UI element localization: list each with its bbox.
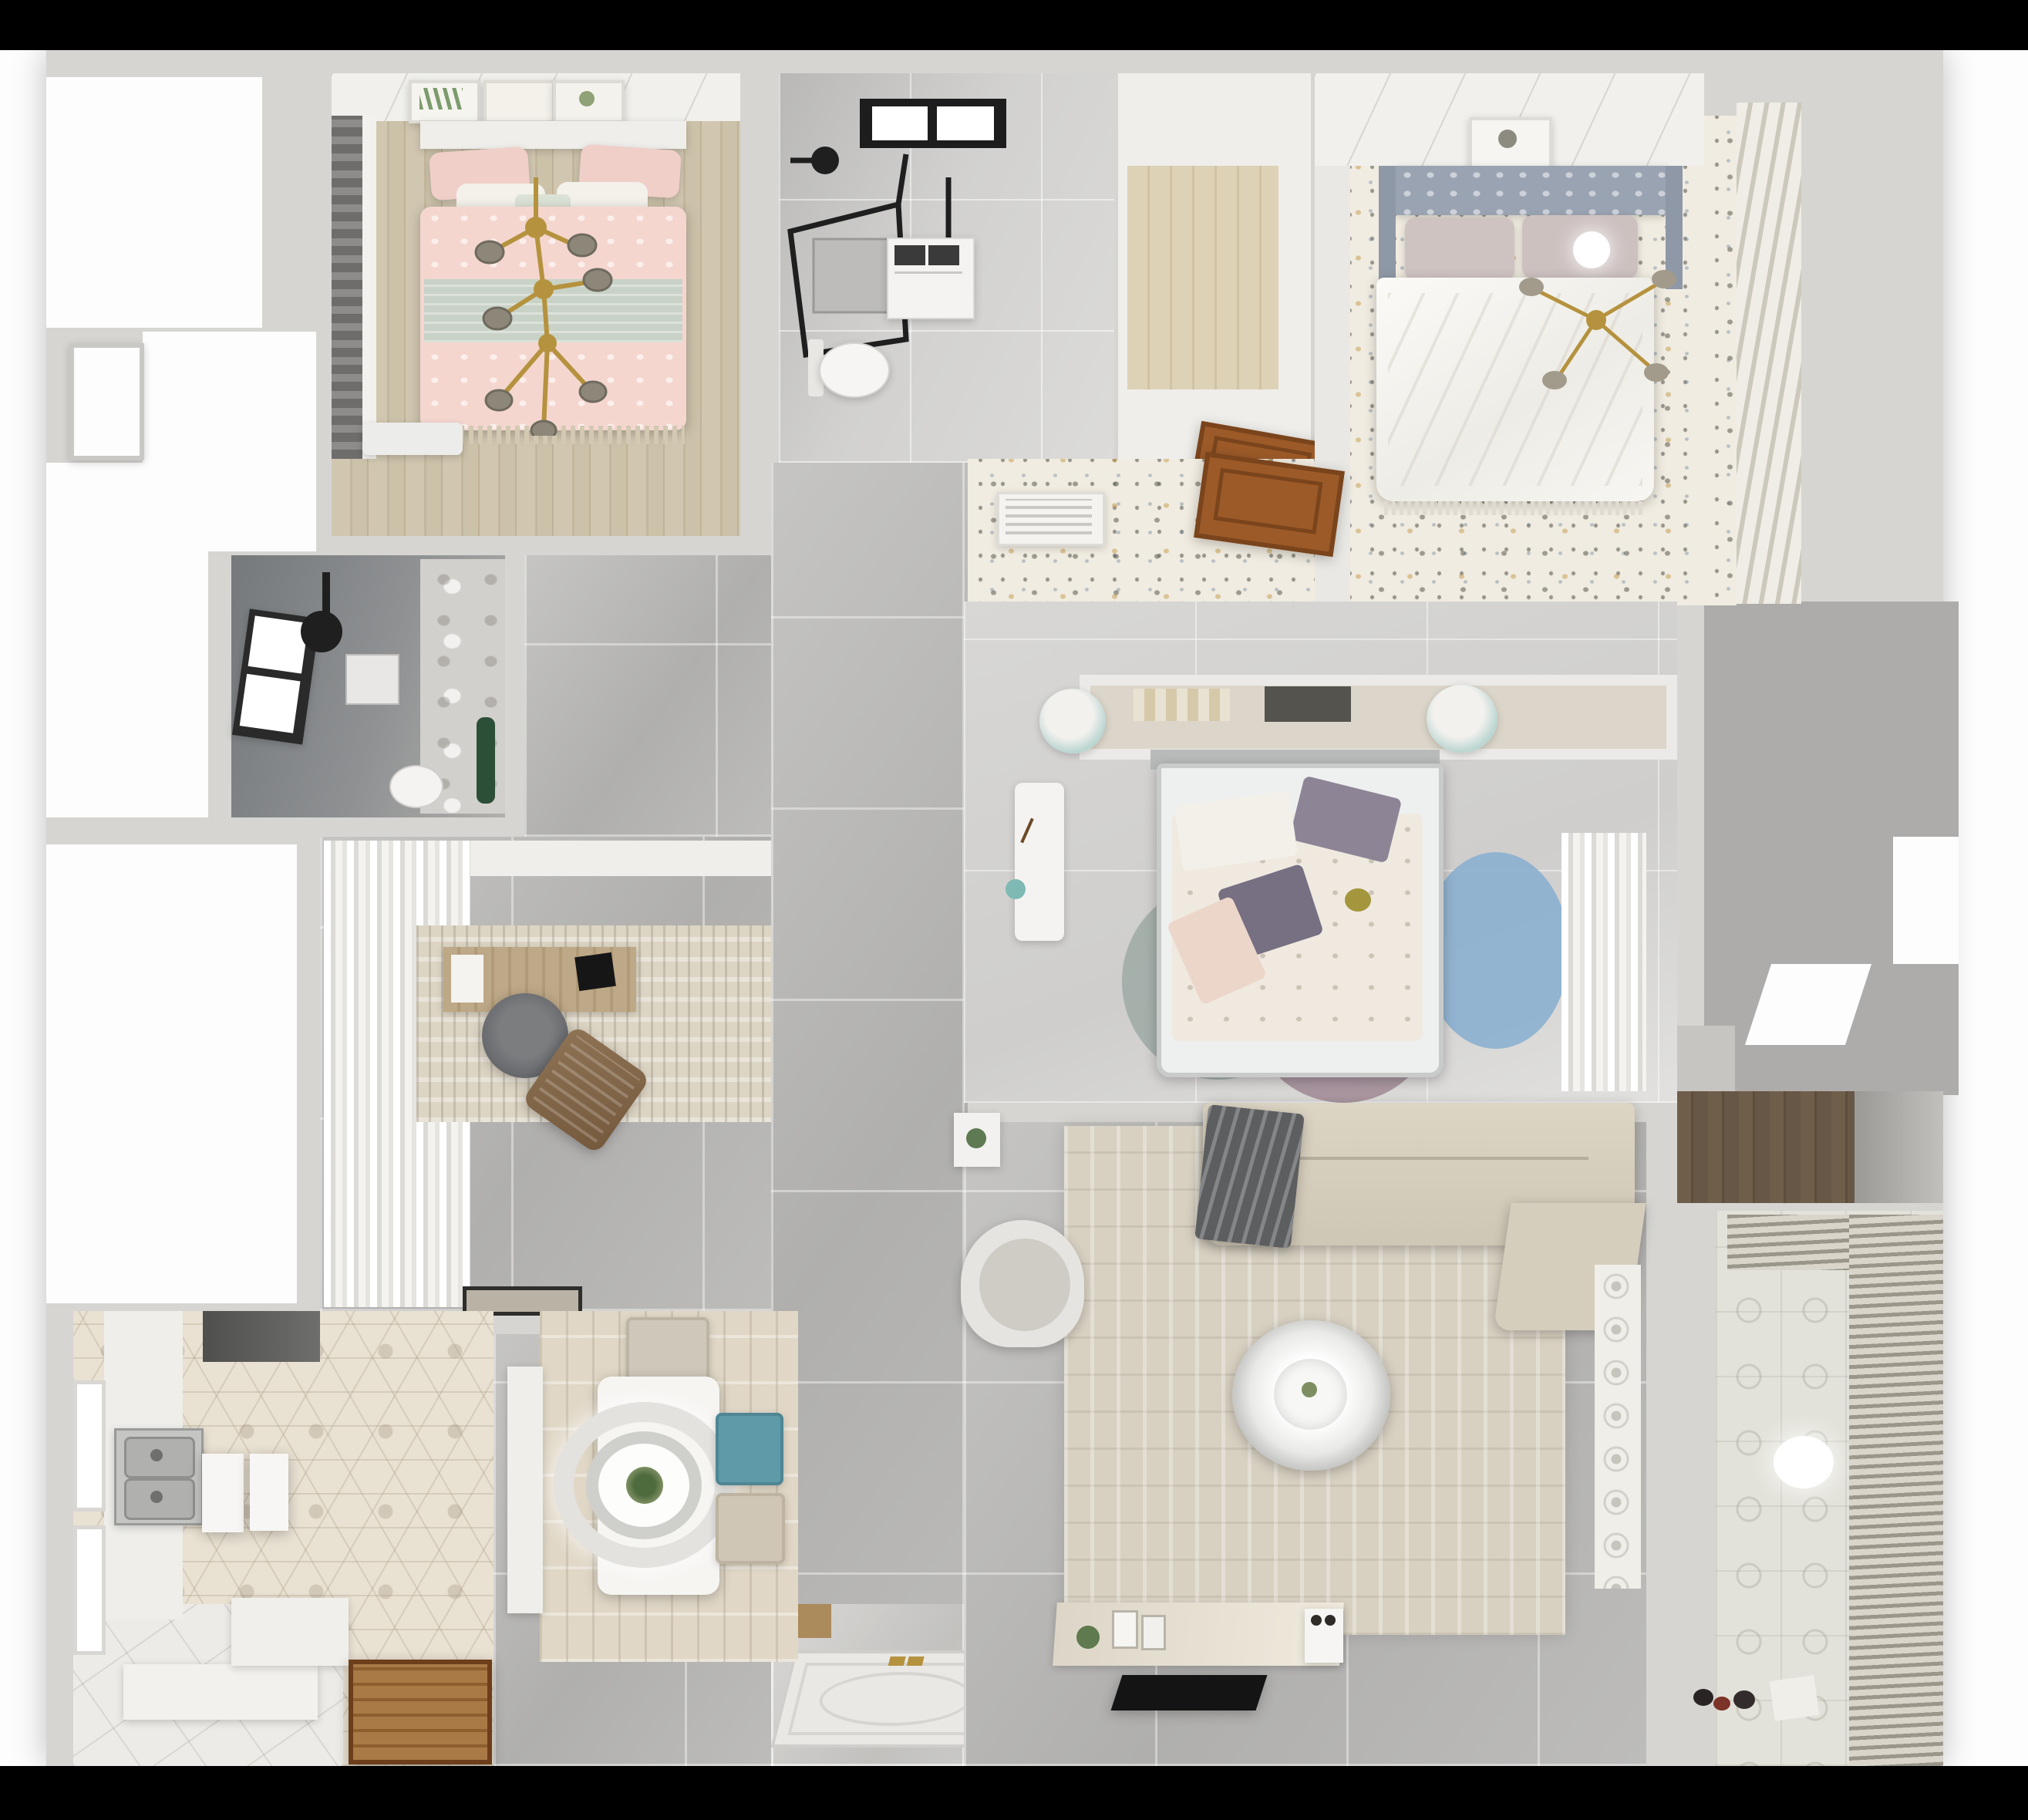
coffee-table-inner (1274, 1359, 1347, 1430)
washer-controls-2 (928, 245, 959, 265)
side-table-plant (966, 1128, 986, 1148)
window-pane-2 (240, 674, 301, 733)
console-frame-1 (1112, 1610, 1138, 1649)
kitchen-counter-bottom (123, 1664, 318, 1720)
desk-laptop (574, 952, 616, 991)
desk-paper (451, 955, 483, 1003)
bedroom2-bed-fringe (1384, 501, 1646, 515)
notch-left-join (46, 463, 143, 551)
console-bottle-2 (1325, 1615, 1336, 1626)
balcony-ceiling-lamp (1774, 1436, 1834, 1488)
skylight-pane-2 (937, 106, 994, 140)
mint-pouf-left (1039, 689, 1106, 753)
tv-panel (1111, 1675, 1268, 1710)
balcony-paper-item (1770, 1675, 1820, 1721)
kitchen-wood-door (349, 1660, 492, 1764)
bedroom2-right-wall-mosaic (1704, 116, 1737, 605)
rug-circle-blue (1423, 852, 1569, 1049)
exterior-door (69, 343, 144, 460)
notch-top-left (46, 77, 262, 328)
ac-louver-vent (997, 492, 1105, 546)
hall-upper (524, 555, 771, 837)
bathroom2-plant (477, 717, 495, 804)
sink-drain-2 (150, 1491, 163, 1503)
bedroom2-headboard-side-left (1379, 166, 1396, 289)
bedroom2-headboard (1396, 166, 1666, 215)
gold-chandelier (428, 174, 644, 436)
coffee-table-sprig (1302, 1382, 1317, 1397)
kitchen-window-1 (73, 1380, 106, 1512)
storage-niche-gray (1855, 1091, 1943, 1203)
duvet-gold-dot (1345, 888, 1371, 912)
window-pane-1 (248, 615, 309, 673)
pendant-plant (626, 1467, 663, 1504)
dining-chair-top (626, 1317, 709, 1384)
bedroom1-art-frame-1 (409, 80, 480, 123)
notch-left-bath (46, 551, 208, 817)
door-handle-gold-2 (907, 1657, 925, 1666)
art-botanical (579, 91, 595, 106)
bathroom2-shower-head (301, 611, 342, 652)
study-top-ledge (470, 841, 771, 876)
bedroom2-pillow-left (1405, 217, 1514, 281)
washer-controls-1 (894, 245, 925, 265)
bottom-black-band (0, 1766, 2028, 1820)
bedroom1-window-blind (332, 116, 362, 459)
void-cutout-2 (1893, 837, 1959, 964)
door-handle-gold-1 (888, 1657, 906, 1666)
bedroom2-art-frame (1469, 117, 1552, 173)
lace-panel (1595, 1265, 1641, 1589)
mint-pouf-right (1427, 685, 1497, 753)
toy-dark-1 (1693, 1689, 1713, 1706)
floorplan-stage (0, 0, 2028, 1820)
armchair-seat (979, 1239, 1070, 1331)
island-slab-2 (250, 1454, 288, 1531)
console-bottle-1 (1311, 1615, 1322, 1626)
bedroom2-ceiling-fan (1504, 254, 1681, 393)
bedroom1-art-frame-2 (483, 80, 555, 123)
washing-machine (887, 238, 975, 319)
notch-left-upper (143, 332, 316, 551)
console-frame-2 (1141, 1615, 1166, 1650)
top-black-band (0, 0, 2028, 50)
kitchen-counter-corner (231, 1598, 349, 1666)
kitchen-sink (114, 1428, 204, 1525)
bedroom2-shutter-wardrobe (1737, 103, 1801, 604)
toilet-2-bowl (389, 765, 443, 808)
desk-teal-cup (1006, 879, 1026, 899)
toy-red (1713, 1697, 1730, 1710)
bedroom1-art-frame-3 (553, 80, 625, 123)
range-hood (203, 1311, 320, 1362)
dining-bench (507, 1367, 543, 1613)
bedroom1-headboard-shelf (420, 121, 686, 149)
bedroom3-sheer-wardrobe (1561, 833, 1646, 1091)
closet-wood-floor (1127, 166, 1278, 389)
corridor-main (771, 463, 968, 1766)
washer-label-lines (894, 271, 962, 274)
bathroom2-shower-tray (345, 654, 399, 705)
art-leaves (419, 88, 463, 110)
bathroom1-skylight (860, 99, 1006, 148)
sofa-blanket-gray (1194, 1104, 1305, 1249)
sink-drain-1 (150, 1449, 163, 1461)
bedroom1-window-sill (362, 116, 376, 459)
notch-left-study (46, 844, 297, 1303)
door-panel-2 (1213, 468, 1322, 534)
shelf-books-2 (1265, 686, 1351, 722)
toy-dark-2 (1733, 1690, 1755, 1709)
void-door-opening (1673, 1026, 1735, 1094)
kitchen-window-2 (73, 1525, 106, 1655)
console-plant (1076, 1626, 1100, 1649)
shelf-books-1 (1134, 689, 1230, 721)
storage-niche-floor (1677, 1091, 1855, 1203)
dining-chair-beige (716, 1493, 785, 1564)
bedroom3-desk (1015, 783, 1064, 941)
skylight-pane-1 (872, 106, 928, 140)
side-table (954, 1113, 1000, 1167)
balcony-blinds-right (1849, 1215, 1943, 1766)
vent-slats (1006, 499, 1092, 534)
console-end-box (1305, 1609, 1343, 1663)
toilet-1-bowl (819, 342, 890, 398)
dining-chair-teal (716, 1413, 783, 1485)
island-slab-1 (202, 1454, 244, 1532)
art-sketch (1498, 130, 1517, 148)
